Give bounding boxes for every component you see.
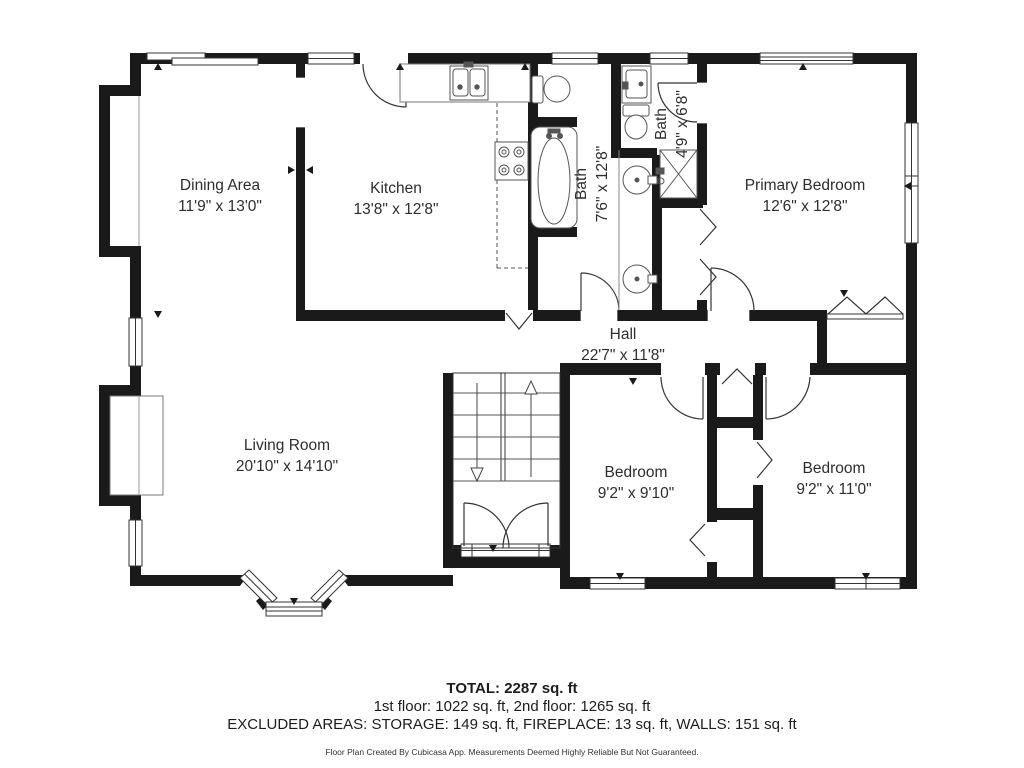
room-name: Kitchen (353, 178, 438, 199)
room-name: Bath (651, 90, 672, 158)
room-label-living-room: Living Room 20'10" x 14'10" (236, 435, 338, 477)
room-dims: 20'10" x 14'10" (236, 456, 338, 477)
toilet-icon (532, 76, 543, 103)
room-label-kitchen: Kitchen 13'8" x 12'8" (353, 178, 438, 220)
floor-areas: 1st floor: 1022 sq. ft, 2nd floor: 1265 … (0, 698, 1024, 716)
stairs (453, 373, 560, 548)
excluded-areas: EXCLUDED AREAS: STORAGE: 149 sq. ft, FIR… (0, 716, 1024, 734)
total-area: TOTAL: 2287 sq. ft (0, 680, 1024, 698)
bedroom-right-closet-mark (757, 442, 772, 478)
room-dims: 13'8" x 12'8" (353, 199, 438, 220)
window-dining-top-b (172, 58, 258, 65)
room-dims: 12'6" x 12'8" (745, 196, 866, 217)
disclaimer: Floor Plan Created By Cubicasa App. Meas… (0, 747, 1024, 757)
fixtures (110, 62, 697, 495)
floor-plan-canvas (0, 0, 1024, 768)
room-label-bedroom-right: Bedroom 9'2" x 11'0" (796, 458, 871, 500)
fireplace (110, 396, 163, 495)
bedroom-middle-closet-mark (690, 524, 705, 556)
room-name: Hall (581, 324, 665, 345)
room-name: Bath (571, 146, 592, 222)
room-dims: 9'2" x 9'10" (598, 483, 674, 504)
floor-plan-page: Dining Area 11'9" x 13'0" Kitchen 13'8" … (0, 0, 1024, 768)
hall-linen-closet-mark (722, 369, 752, 384)
room-name: Bedroom (598, 462, 674, 483)
primary-closet-bifold-doors (828, 297, 903, 314)
room-dims: 7'6" x 12'8" (592, 146, 613, 222)
room-label-bedroom-middle: Bedroom 9'2" x 9'10" (598, 462, 674, 504)
room-dims: 22'7" x 11'8" (581, 345, 665, 366)
room-label-bath-small: Bath 4'9" x 6'8" (651, 90, 693, 158)
primary-closet-bifold (700, 209, 716, 245)
room-label-dining: Dining Area 11'9" x 13'0" (178, 175, 262, 217)
summary-footer: TOTAL: 2287 sq. ft 1st floor: 1022 sq. f… (0, 680, 1024, 757)
room-label-hall: Hall 22'7" x 11'8" (581, 324, 665, 366)
room-name: Primary Bedroom (745, 175, 866, 196)
primary-closet-track (827, 314, 903, 319)
room-dims: 9'2" x 11'0" (796, 479, 871, 500)
room-name: Bedroom (796, 458, 871, 479)
room-name: Dining Area (178, 175, 262, 196)
door-opening-kitchen (360, 52, 408, 65)
window-primary-top (760, 53, 853, 64)
room-name: Living Room (236, 435, 338, 456)
room-dims: 11'9" x 13'0" (178, 196, 262, 217)
opening-mark-kitchen-hall (506, 313, 532, 329)
door-swings (363, 64, 810, 548)
stove-icon (495, 142, 528, 180)
room-label-bath: Bath 7'6" x 12'8" (571, 146, 613, 222)
room-dims: 4'9" x 6'8" (672, 90, 693, 158)
windows (129, 52, 918, 616)
toilet-icon (623, 105, 649, 116)
room-label-primary-bedroom: Primary Bedroom 12'6" x 12'8" (745, 175, 866, 217)
